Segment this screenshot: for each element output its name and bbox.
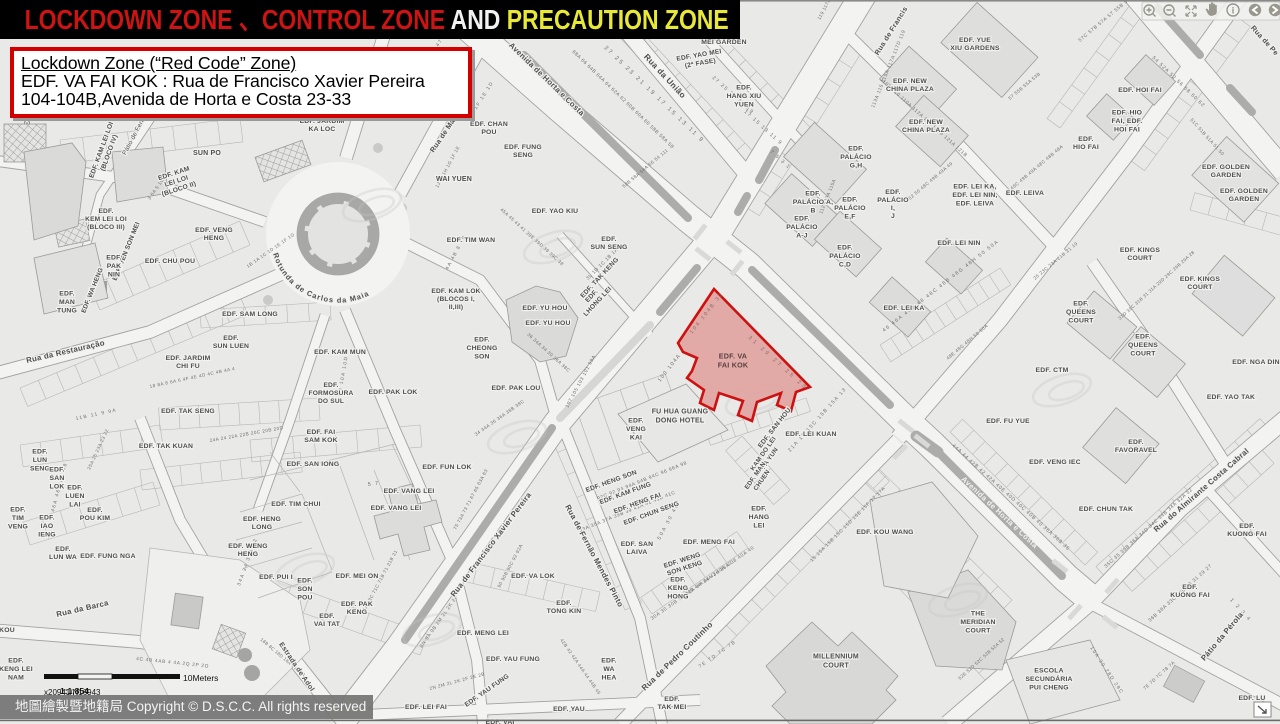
svg-text:EDF. VA LOK: EDF. VA LOK bbox=[511, 573, 555, 580]
svg-text:WAI YUEN: WAI YUEN bbox=[436, 176, 472, 183]
svg-text:EDF. LEI NIN: EDF. LEI NIN bbox=[937, 240, 980, 247]
svg-text:EDF.SANLOK: EDF.SANLOK bbox=[49, 467, 65, 491]
svg-text:10Meters: 10Meters bbox=[183, 673, 218, 683]
svg-text:EDF. FUNG NGA: EDF. FUNG NGA bbox=[80, 553, 135, 560]
svg-text:FU HUA GUANGDONG HOTEL: FU HUA GUANGDONG HOTEL bbox=[652, 409, 709, 425]
svg-text:EDF. VAFAI KOK: EDF. VAFAI KOK bbox=[718, 352, 749, 370]
svg-text:EDF. LEI FAI: EDF. LEI FAI bbox=[405, 704, 447, 711]
svg-text:EDF.MANTUNG: EDF.MANTUNG bbox=[57, 291, 77, 315]
svg-text:EDF. MEI ON: EDF. MEI ON bbox=[336, 573, 379, 580]
svg-text:EDF. TAK SENG: EDF. TAK SENG bbox=[161, 408, 215, 415]
svg-text:EDF. HIOFAI, EDF.HOI FAI: EDF. HIOFAI, EDF.HOI FAI bbox=[1112, 110, 1143, 134]
svg-text:EDF. FAISAM KOK: EDF. FAISAM KOK bbox=[304, 429, 338, 444]
svg-text:EDF. YAO TAK: EDF. YAO TAK bbox=[1207, 394, 1255, 401]
svg-text:EDF.WAHEA: EDF.WAHEA bbox=[601, 658, 617, 682]
svg-text:EDF. FU YUE: EDF. FU YUE bbox=[986, 418, 1030, 425]
svg-text:EDF. PUI I: EDF. PUI I bbox=[259, 574, 293, 581]
svg-text:EDF. HOI FAI: EDF. HOI FAI bbox=[1118, 87, 1162, 94]
svg-text:EDF. KOU WANG: EDF. KOU WANG bbox=[856, 529, 913, 536]
svg-text:EDF.LUNSENG: EDF.LUNSENG bbox=[30, 449, 50, 473]
svg-text:i: i bbox=[1232, 5, 1235, 15]
svg-text:EDF. CTM: EDF. CTM bbox=[1036, 367, 1069, 374]
svg-text:EDF. YAU FUNG: EDF. YAU FUNG bbox=[486, 656, 540, 663]
svg-text:MEI GARDEN: MEI GARDEN bbox=[701, 39, 746, 46]
svg-text:EDF. TAK KUAN: EDF. TAK KUAN bbox=[139, 443, 193, 450]
svg-text:EDF. LU: EDF. LU bbox=[1238, 695, 1265, 702]
svg-text:EDF. TIM WAN: EDF. TIM WAN bbox=[447, 237, 495, 244]
svg-text:EDF. CHU POU: EDF. CHU POU bbox=[145, 258, 195, 265]
svg-text:EDF. SAM LONG: EDF. SAM LONG bbox=[222, 311, 278, 318]
svg-text:EDF. LEI KUAN: EDF. LEI KUAN bbox=[785, 431, 836, 438]
svg-text:EDF. LEI KA: EDF. LEI KA bbox=[883, 305, 924, 312]
svg-text:KOU: KOU bbox=[0, 627, 15, 634]
svg-text:EDF. NEWCHINA PLAZA: EDF. NEWCHINA PLAZA bbox=[902, 119, 950, 134]
svg-text:EDF. YAU: EDF. YAU bbox=[553, 706, 585, 713]
svg-text:EDF. VANG LEI: EDF. VANG LEI bbox=[384, 488, 435, 495]
svg-text:EDF. YAO KIU: EDF. YAO KIU bbox=[532, 208, 579, 215]
svg-text:EDF. PAK LOU: EDF. PAK LOU bbox=[491, 385, 540, 392]
svg-text:EDF. VENG IEC: EDF. VENG IEC bbox=[1029, 459, 1081, 466]
svg-text:EDF.PAKNIN: EDF.PAKNIN bbox=[106, 255, 122, 279]
svg-text:EDF.SONPOU: EDF.SONPOU bbox=[297, 578, 313, 602]
svg-text:EDF. YU HOU: EDF. YU HOU bbox=[525, 320, 570, 327]
svg-text:EDF.KENGHONG: EDF.KENGHONG bbox=[667, 577, 688, 601]
svg-text:EDF. MENG FAI: EDF. MENG FAI bbox=[683, 539, 735, 546]
svg-text:EDF. MENG LEI: EDF. MENG LEI bbox=[457, 630, 509, 637]
svg-text:EDF. NGA DIN: EDF. NGA DIN bbox=[1232, 359, 1279, 366]
svg-text:EDF. SAN IONG: EDF. SAN IONG bbox=[287, 461, 340, 468]
svg-text:EDF.IAOIENG: EDF.IAOIENG bbox=[38, 515, 55, 539]
svg-text:EDF. CHUN TAK: EDF. CHUN TAK bbox=[1079, 506, 1133, 513]
svg-text:EDF. LEI KA,EDF. LEI NIN,EDF.: EDF. LEI KA,EDF. LEI NIN,EDF. LEIVA bbox=[952, 184, 997, 208]
svg-text:EDF. VANG LEI: EDF. VANG LEI bbox=[371, 505, 422, 512]
svg-text:SUN PO: SUN PO bbox=[193, 150, 221, 157]
svg-text:EDF. KAM MUN: EDF. KAM MUN bbox=[314, 349, 366, 356]
svg-text:EDF. FUN LOK: EDF. FUN LOK bbox=[422, 464, 471, 471]
svg-text:EDF. YU HOU: EDF. YU HOU bbox=[522, 305, 567, 312]
svg-text:EDF. LEIVA: EDF. LEIVA bbox=[1006, 190, 1044, 197]
svg-text:EDF. PAK LOK: EDF. PAK LOK bbox=[368, 389, 417, 396]
svg-text:EDF. NEWCHINA PLAZA: EDF. NEWCHINA PLAZA bbox=[886, 78, 934, 93]
svg-text:EDF. TIM CHUI: EDF. TIM CHUI bbox=[271, 501, 320, 508]
